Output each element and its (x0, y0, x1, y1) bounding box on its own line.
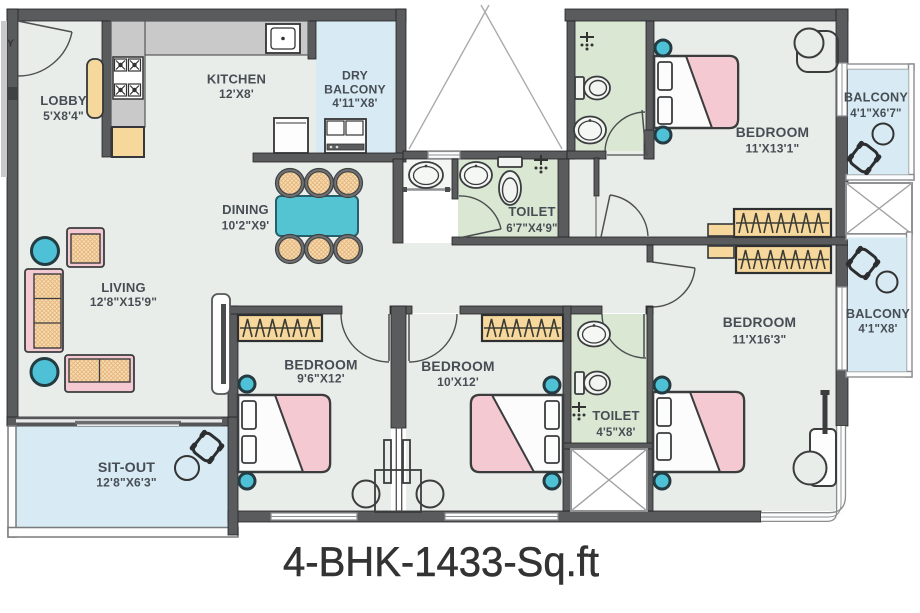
svg-text:BEDROOM: BEDROOM (421, 359, 494, 374)
svg-text:4-BHK-1433-Sq.ft: 4-BHK-1433-Sq.ft (283, 538, 599, 585)
svg-text:10'2"X9': 10'2"X9' (222, 219, 270, 233)
svg-text:4'11"X8': 4'11"X8' (332, 98, 377, 110)
svg-text:BALCONY: BALCONY (844, 91, 908, 105)
svg-text:LOBBY: LOBBY (40, 93, 87, 108)
svg-text:KITCHEN: KITCHEN (207, 72, 266, 87)
svg-text:11'X16'3": 11'X16'3" (733, 333, 787, 347)
svg-text:12'8"X15'9": 12'8"X15'9" (90, 295, 157, 309)
svg-text:11'X13'1": 11'X13'1" (746, 142, 800, 156)
svg-text:5'X8'4": 5'X8'4" (43, 109, 84, 123)
svg-text:9'6"X12': 9'6"X12' (297, 372, 345, 386)
svg-text:BEDROOM: BEDROOM (723, 315, 796, 330)
svg-text:4'1"X6'7": 4'1"X6'7" (850, 108, 901, 120)
svg-text:Y: Y (7, 38, 14, 50)
svg-text:TOILET: TOILET (508, 204, 555, 219)
svg-text:BEDROOM: BEDROOM (736, 125, 809, 140)
svg-text:12'X8': 12'X8' (219, 87, 254, 101)
svg-text:BEDROOM: BEDROOM (284, 358, 357, 373)
svg-text:10'X12': 10'X12' (437, 375, 479, 389)
svg-text:6'7"X4'9": 6'7"X4'9" (506, 223, 557, 235)
svg-text:DRY: DRY (342, 69, 368, 83)
svg-text:SIT-OUT: SIT-OUT (98, 460, 155, 476)
svg-text:TOILET: TOILET (592, 408, 639, 423)
svg-text:4'5"X8': 4'5"X8' (596, 427, 635, 439)
svg-text:12'8"X6'3": 12'8"X6'3" (96, 476, 156, 490)
svg-text:DINING: DINING (222, 202, 269, 217)
svg-text:BALCONY: BALCONY (846, 307, 910, 321)
svg-text:4'1"X8': 4'1"X8' (858, 324, 897, 336)
svg-text:LIVING: LIVING (101, 280, 146, 295)
svg-text:BALCONY: BALCONY (324, 83, 386, 97)
